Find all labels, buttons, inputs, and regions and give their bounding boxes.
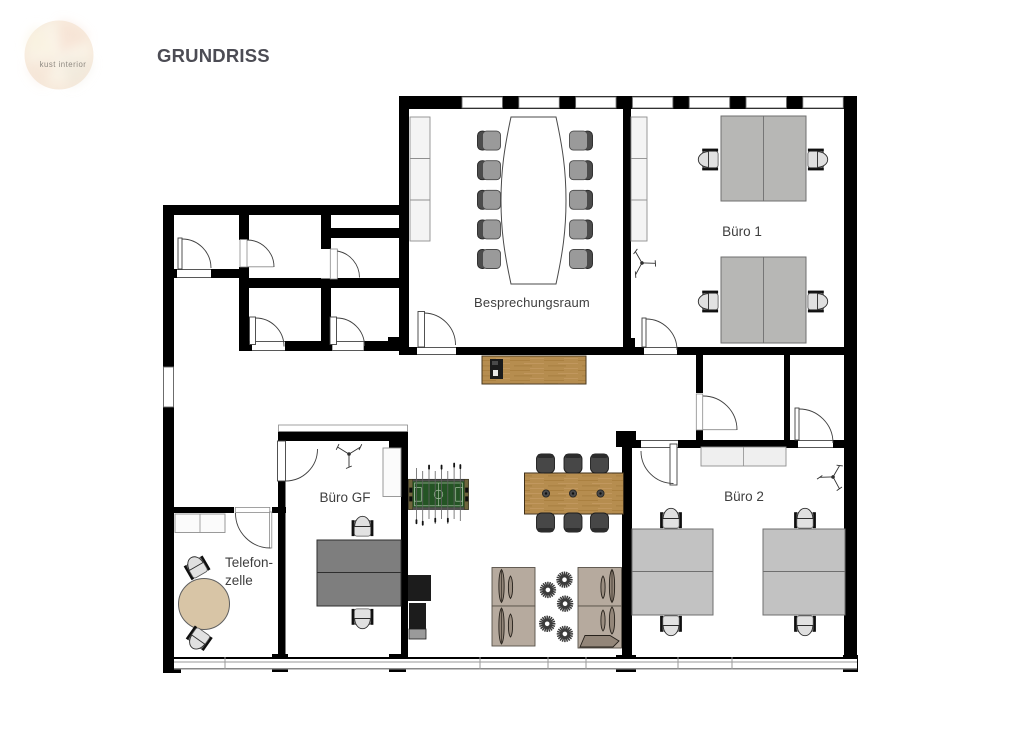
svg-text:Büro 2: Büro 2	[724, 489, 764, 504]
svg-text:Büro 1: Büro 1	[722, 224, 762, 239]
svg-text:GRUNDRISS: GRUNDRISS	[157, 45, 270, 66]
svg-text:Telefon-: Telefon-	[225, 555, 273, 570]
svg-text:Büro GF: Büro GF	[319, 490, 370, 505]
svg-text:kust interior: kust interior	[40, 60, 87, 69]
svg-text:zelle: zelle	[225, 573, 253, 588]
svg-text:Besprechungsraum: Besprechungsraum	[474, 295, 590, 310]
